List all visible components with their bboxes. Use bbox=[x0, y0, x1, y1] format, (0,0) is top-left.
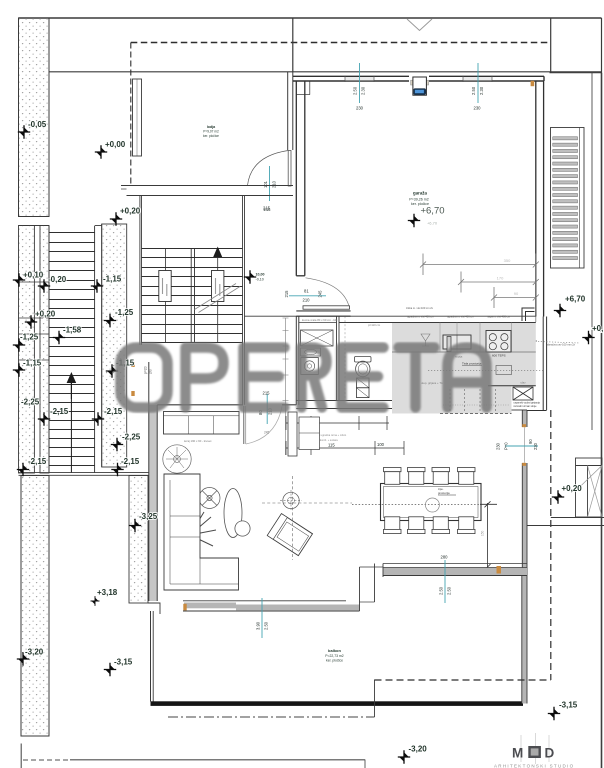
svg-text:ker. pločice: ker. pločice bbox=[326, 659, 343, 663]
svg-text:P=39,26 m2: P=39,26 m2 bbox=[409, 198, 428, 202]
svg-text:ulaz: ulaz bbox=[521, 381, 527, 385]
svg-text:101: 101 bbox=[263, 180, 268, 188]
svg-text:81: 81 bbox=[304, 289, 309, 294]
svg-text:+0,20: +0,20 bbox=[35, 310, 56, 319]
svg-text:230: 230 bbox=[474, 106, 482, 111]
svg-text:215: 215 bbox=[284, 290, 289, 298]
svg-text:150: 150 bbox=[481, 530, 485, 536]
svg-text:balkon: balkon bbox=[328, 648, 341, 653]
svg-text:ker. pločice: ker. pločice bbox=[203, 134, 219, 138]
svg-text:-1,15: -1,15 bbox=[103, 275, 122, 284]
svg-text:210: 210 bbox=[271, 180, 276, 188]
svg-text:+6,70: +6,70 bbox=[565, 295, 586, 304]
svg-text:ugradna m. visi 400 cm: ugradna m. visi 400 cm bbox=[447, 315, 474, 319]
svg-text:90: 90 bbox=[514, 291, 519, 296]
svg-text:ugradna m. visi 400 cm: ugradna m. visi 400 cm bbox=[407, 315, 434, 319]
svg-text:+0,00: +0,00 bbox=[105, 140, 126, 149]
svg-text:-2,25: -2,25 bbox=[21, 398, 40, 407]
svg-text:-1,15: -1,15 bbox=[23, 359, 42, 368]
svg-text:-3,15: -3,15 bbox=[114, 658, 133, 667]
svg-text:2.50: 2.50 bbox=[446, 586, 451, 595]
svg-text:3.90: 3.90 bbox=[255, 621, 260, 630]
svg-text:D: D bbox=[545, 746, 555, 761]
svg-text:215: 215 bbox=[263, 391, 271, 396]
svg-text:115: 115 bbox=[328, 443, 335, 448]
svg-text:+6,70: +6,70 bbox=[420, 206, 444, 217]
svg-text:2.50: 2.50 bbox=[353, 86, 358, 95]
svg-text:2.50: 2.50 bbox=[438, 586, 443, 595]
svg-text:350: 350 bbox=[504, 258, 511, 263]
svg-text:-3,15: -3,15 bbox=[559, 701, 578, 710]
svg-text:ARHITEKTONSKI STUDIO: ARHITEKTONSKI STUDIO bbox=[494, 764, 574, 768]
svg-text:+3,18: +3,18 bbox=[97, 588, 118, 597]
svg-text:napa m. visi 400 cm: napa m. visi 400 cm bbox=[487, 315, 510, 319]
svg-text:245: 245 bbox=[318, 290, 323, 298]
svg-text:utep. grijaca + TA: utep. grijaca + TA bbox=[421, 381, 443, 385]
svg-text:+0,20: +0,20 bbox=[120, 207, 141, 216]
svg-text:-2,15: -2,15 bbox=[50, 407, 69, 416]
svg-text:230: 230 bbox=[495, 442, 500, 450]
svg-text:10,00: 10,00 bbox=[256, 273, 265, 277]
svg-text:-1,25: -1,25 bbox=[115, 308, 134, 317]
svg-text:-3,20: -3,20 bbox=[25, 648, 44, 657]
svg-text:-3,25: -3,25 bbox=[139, 512, 158, 521]
svg-text:280: 280 bbox=[441, 555, 449, 560]
svg-text:+0,: +0, bbox=[592, 324, 603, 333]
svg-text:-0,20: -0,20 bbox=[48, 275, 67, 284]
svg-text:-2,15: -2,15 bbox=[104, 407, 123, 416]
svg-text:P+0: P+0 bbox=[504, 442, 509, 450]
svg-text:lezaj 190 x 90 - krevet: lezaj 190 x 90 - krevet bbox=[184, 439, 212, 443]
svg-text:P=22,73 m2: P=22,73 m2 bbox=[325, 654, 343, 658]
svg-text:-0,10: -0,10 bbox=[256, 278, 264, 282]
svg-text:170: 170 bbox=[497, 276, 504, 281]
svg-text:-0,05: -0,05 bbox=[28, 120, 47, 129]
svg-text:100: 100 bbox=[377, 442, 385, 447]
svg-text:zidna m. visi 100 cm 2x: zidna m. visi 100 cm 2x bbox=[406, 306, 434, 310]
svg-text:M: M bbox=[512, 746, 524, 761]
svg-text:p=20: p=20 bbox=[144, 366, 148, 374]
svg-text:2.50: 2.50 bbox=[263, 621, 268, 630]
svg-text:-2,15: -2,15 bbox=[28, 457, 47, 466]
svg-text:+0,20: +0,20 bbox=[562, 484, 583, 493]
svg-text:245: 245 bbox=[264, 431, 270, 435]
svg-text:600 TEPS: 600 TEPS bbox=[492, 354, 506, 358]
svg-text:p=110 cm: p=110 cm bbox=[368, 323, 381, 327]
svg-text:prostorija: prostorija bbox=[438, 491, 450, 495]
svg-text:230: 230 bbox=[533, 442, 538, 450]
svg-text:-3,20: -3,20 bbox=[409, 745, 428, 754]
svg-text:-1,58: -1,58 bbox=[63, 326, 82, 335]
svg-text:+6,70: +6,70 bbox=[427, 221, 438, 226]
svg-text:garaža: garaža bbox=[413, 191, 427, 196]
svg-text:razvodni orman struje: razvodni orman struje bbox=[514, 405, 538, 408]
svg-text:2.30: 2.30 bbox=[361, 86, 366, 95]
svg-text:-2,25: -2,25 bbox=[122, 433, 141, 442]
svg-text:2.50: 2.50 bbox=[471, 86, 476, 95]
svg-text:2.30: 2.30 bbox=[479, 86, 484, 95]
svg-text:odzračna cev 100 mm 2x: odzračna cev 100 mm 2x bbox=[546, 343, 576, 347]
svg-text:215: 215 bbox=[264, 207, 272, 212]
svg-text:+0,10: +0,10 bbox=[23, 271, 44, 280]
svg-text:230: 230 bbox=[356, 106, 364, 111]
svg-text:-2,15: -2,15 bbox=[121, 457, 140, 466]
svg-text:-1,25: -1,25 bbox=[20, 333, 39, 342]
svg-text:210: 210 bbox=[303, 298, 311, 303]
svg-text:kucna vrata 80 x 60 cm - klik: kucna vrata 80 x 60 cm - klik bbox=[302, 318, 338, 322]
svg-text:lodja: lodja bbox=[207, 125, 216, 129]
svg-text:Tisla prostorija: Tisla prostorija bbox=[462, 362, 482, 366]
